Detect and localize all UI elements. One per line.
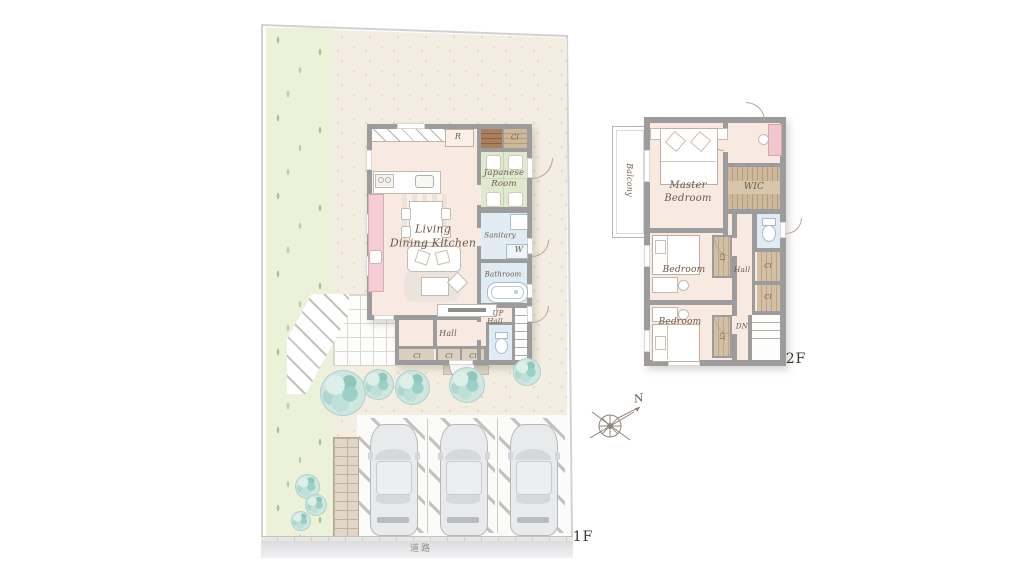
bathtub-drain <box>514 290 518 294</box>
car-trunk <box>377 517 409 523</box>
floor-label-2f: 2F <box>786 351 807 367</box>
nightstand <box>717 128 728 140</box>
floor-label-1f: 1F <box>573 529 594 545</box>
car-mirror <box>368 452 373 460</box>
zabuton-cushion <box>486 192 501 207</box>
label-closet: Cl <box>413 352 420 360</box>
car-windshield <box>445 449 481 460</box>
tree <box>449 367 485 403</box>
shrub <box>291 511 311 531</box>
car-windshield <box>515 449 551 460</box>
room-label-bathroom: Bathroom <box>485 270 522 279</box>
lawn-area <box>266 28 333 537</box>
door-arc <box>746 102 765 121</box>
window <box>397 123 425 129</box>
room-label-bedroom1: Bedroom <box>663 265 706 277</box>
kitchen-side-counter <box>368 194 384 292</box>
wall-segment <box>755 281 780 285</box>
car-rear-window <box>376 495 410 504</box>
wall-segment <box>502 129 504 148</box>
compass-icon <box>590 402 646 446</box>
tv-board <box>437 304 497 317</box>
stove-burner <box>385 177 391 183</box>
wall-segment <box>399 346 486 349</box>
wall-segment <box>732 214 737 360</box>
stall-divider <box>427 418 428 533</box>
stove-burner <box>378 177 384 183</box>
toilet-2f-bowl <box>762 225 776 242</box>
label-fridge: R <box>455 132 461 142</box>
label-closet: Cl <box>718 332 726 339</box>
wall-segment <box>477 124 481 320</box>
shrub <box>305 494 327 516</box>
car <box>440 424 488 536</box>
floor-plan-canvas: 道路 <box>0 0 1024 578</box>
tree <box>395 370 430 405</box>
label-closet: Cl <box>718 253 726 260</box>
car-rear-window <box>446 495 480 504</box>
bed-pillow <box>655 240 666 254</box>
wall-segment <box>484 346 489 365</box>
room-label-master-bedroom: Master Bedroom <box>664 179 711 205</box>
bed-sheet-line <box>667 325 668 359</box>
balcony-door-opening <box>644 150 650 182</box>
brick-wall <box>333 437 359 538</box>
door-opening <box>477 185 481 205</box>
label-closet: Cl <box>445 352 452 360</box>
coffee-table <box>421 277 449 296</box>
car-roof <box>516 461 552 495</box>
car-mirror <box>485 452 490 460</box>
window <box>644 245 650 267</box>
wall-segment <box>755 311 780 315</box>
wall-segment <box>755 248 780 252</box>
label-closet: Cl <box>469 352 476 360</box>
wall-segment <box>433 320 437 349</box>
label-closet: Cl <box>764 262 771 270</box>
room-label-hall: Hall <box>439 329 457 339</box>
car-trunk <box>517 517 549 523</box>
stairs-1f <box>515 308 527 360</box>
tree <box>320 370 366 416</box>
vanity-stool <box>758 134 769 145</box>
wall-segment <box>650 300 737 305</box>
wall-segment <box>477 207 532 213</box>
wall-segment <box>752 252 755 315</box>
car <box>510 424 558 536</box>
kitchen-counter <box>373 171 441 194</box>
room-label-hall-2f: Hall <box>734 265 751 275</box>
dining-chair <box>441 208 451 220</box>
tv <box>448 308 486 312</box>
compass-north-label: N <box>633 391 646 407</box>
nightstand <box>650 128 661 140</box>
label-up-hall: Hall <box>487 317 503 326</box>
tree <box>363 369 394 400</box>
car-trunk <box>447 517 479 523</box>
dining-chair <box>401 208 411 220</box>
stairs-2f <box>752 315 780 339</box>
wall-segment <box>752 214 757 252</box>
desk-chair <box>678 280 689 291</box>
label-down: DN <box>736 322 748 331</box>
bed-pillow <box>665 131 686 152</box>
bed-pillow <box>690 131 711 152</box>
window <box>374 315 394 320</box>
door-opening <box>477 322 481 340</box>
room-label-wic: WIC <box>744 182 764 194</box>
bathtub <box>487 282 528 303</box>
bed-pillow <box>655 336 666 350</box>
pantry-shelf <box>481 129 502 148</box>
car-rear-window <box>516 495 550 504</box>
car-windshield <box>375 449 411 460</box>
sofa-pillow <box>414 249 430 265</box>
sofa-pillow <box>435 250 451 266</box>
counter-chair <box>369 250 382 264</box>
door-opening <box>477 228 481 246</box>
wall-segment <box>650 228 728 233</box>
room-label-japanese: Japanese Room <box>484 168 524 190</box>
room-label-sanitary: Sanitary <box>484 231 516 240</box>
toilet-1f-bowl <box>495 338 508 354</box>
double-bed <box>660 128 718 185</box>
label-closet: Cl <box>764 293 771 301</box>
zabuton-cushion <box>508 192 523 207</box>
compass-rose <box>590 402 646 446</box>
wall-segment <box>512 308 515 365</box>
door-arc <box>786 218 802 234</box>
stairs-2f-winder <box>752 339 780 360</box>
car-mirror <box>555 452 560 460</box>
car-roof <box>376 461 412 495</box>
car-roof <box>446 461 482 495</box>
car-mirror <box>438 452 443 460</box>
stall-divider <box>497 418 498 533</box>
label-closet-top: Cl <box>511 133 519 142</box>
single-bed-2 <box>652 324 700 362</box>
wall-segment <box>436 349 438 365</box>
wall-segment <box>728 163 780 167</box>
wall-segment <box>481 148 527 152</box>
wall-segment <box>395 320 399 365</box>
wall-segment <box>481 259 532 263</box>
desk-1 <box>652 277 678 293</box>
window <box>366 150 372 170</box>
sink <box>415 175 434 188</box>
car-mirror <box>508 452 513 460</box>
window <box>644 330 650 352</box>
tree <box>513 358 541 386</box>
vanity <box>768 124 782 156</box>
room-label-balcony: Balcony <box>624 163 634 197</box>
bed-sheet-line <box>661 161 715 162</box>
washbasin <box>510 214 528 230</box>
road-label: 道路 <box>410 544 432 556</box>
bathtub-inner <box>491 286 524 299</box>
car-mirror <box>415 452 420 460</box>
room-label-bedroom2: Bedroom <box>659 317 702 329</box>
label-washer: W <box>515 245 523 255</box>
wall-segment <box>748 315 752 360</box>
room-label-ldk: Living Dining Kitchen <box>390 223 476 252</box>
car <box>370 424 418 536</box>
